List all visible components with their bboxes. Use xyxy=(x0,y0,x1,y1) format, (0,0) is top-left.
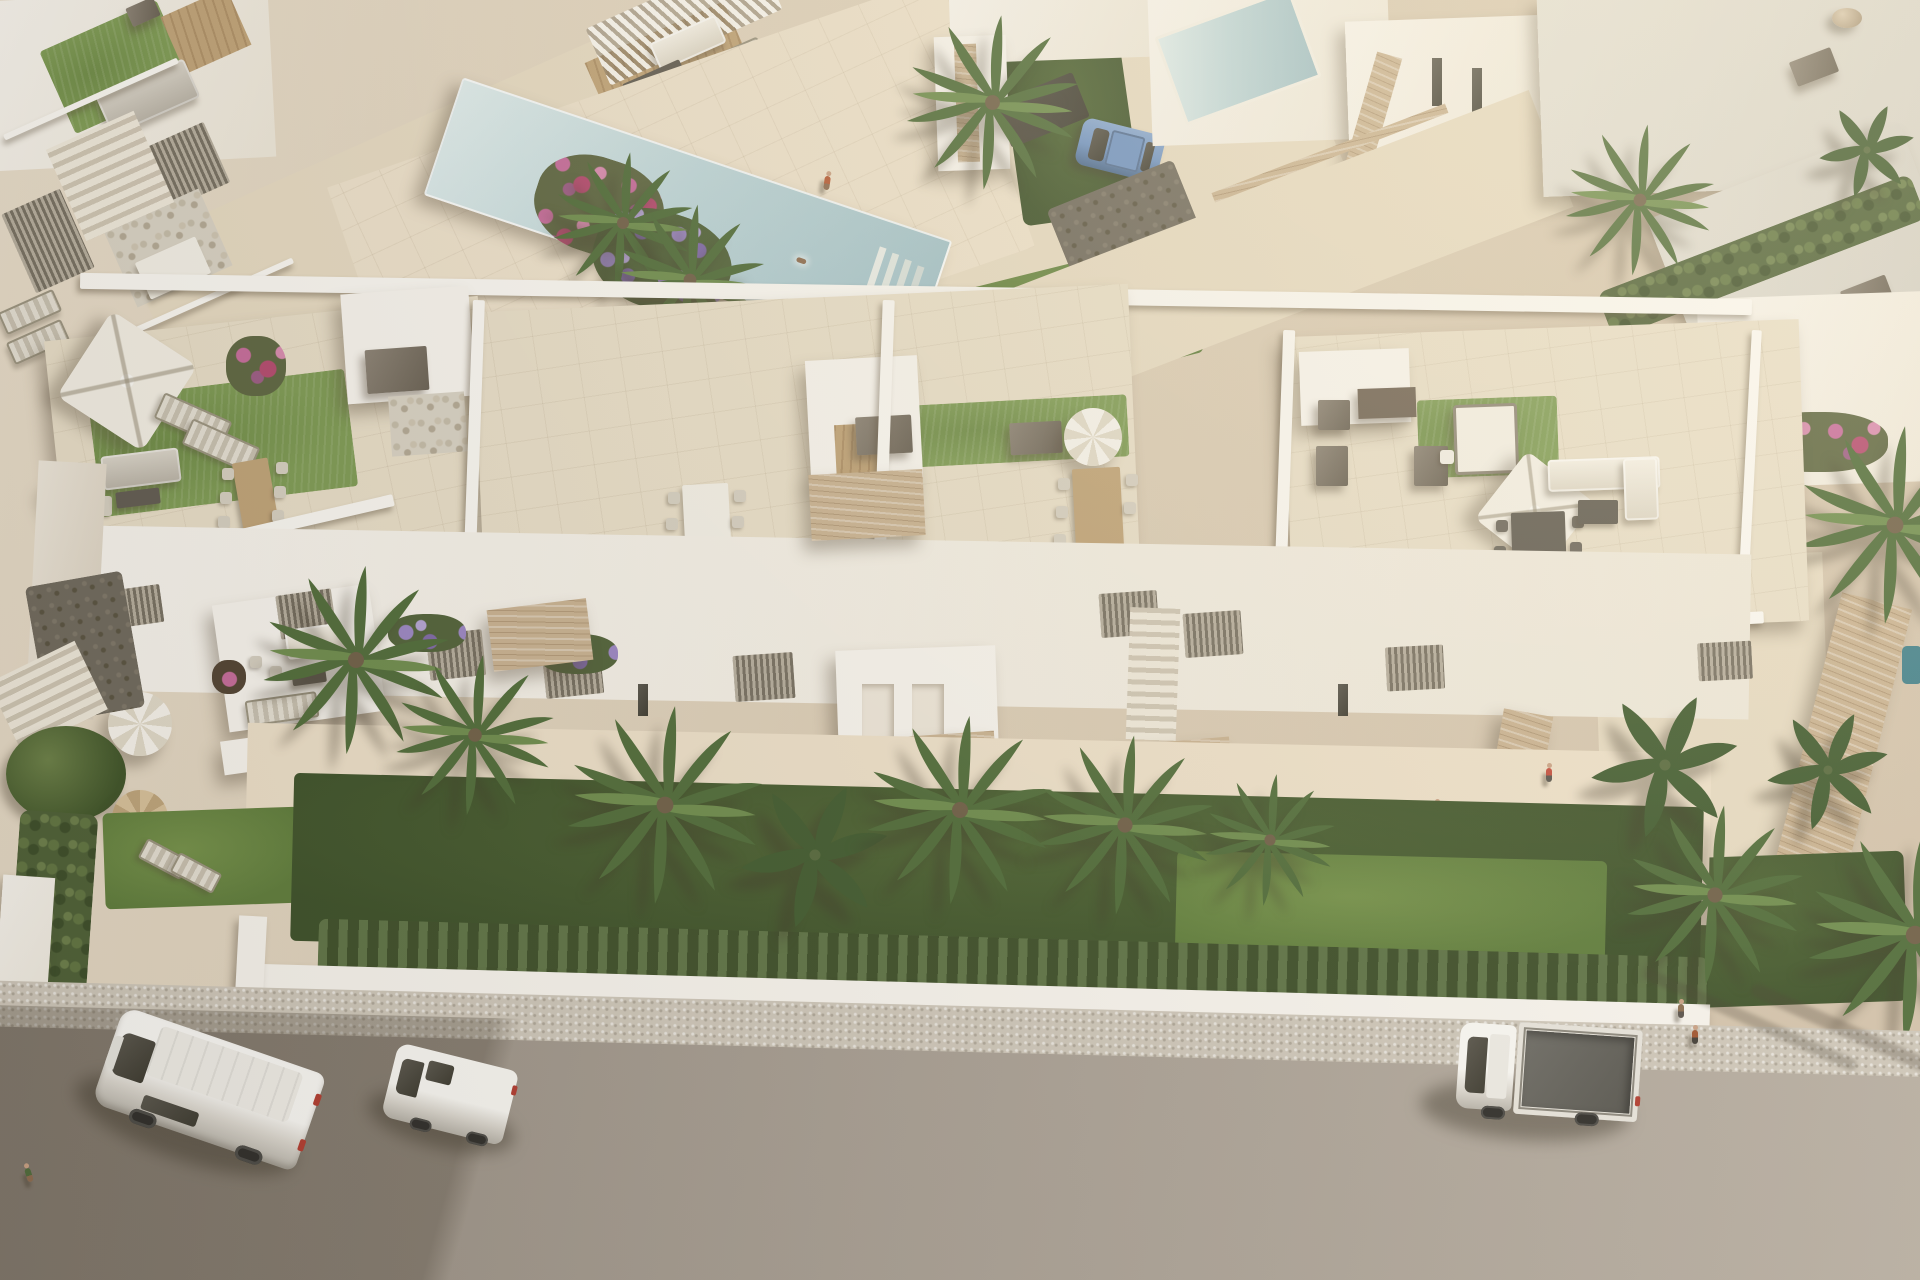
roof-storage-box xyxy=(1009,421,1063,456)
roof-corner-sofa xyxy=(1623,457,1659,520)
chair xyxy=(1124,502,1136,514)
louver-door xyxy=(1697,641,1753,682)
pebble-patch xyxy=(388,391,468,456)
teal-car-glimpse xyxy=(1902,646,1920,684)
chair xyxy=(734,490,746,502)
chair xyxy=(222,468,234,480)
palm-tree-icon xyxy=(1560,120,1720,280)
window-slit xyxy=(1338,684,1348,716)
chair xyxy=(218,516,230,528)
chair xyxy=(220,492,232,504)
stone-canopy xyxy=(808,469,925,541)
white-flatbed-truck xyxy=(1455,1018,1643,1124)
pedestrian xyxy=(1678,1004,1684,1018)
chair xyxy=(732,516,744,528)
palm-tree-icon xyxy=(1200,770,1340,910)
palm-tree-icon xyxy=(1620,800,1810,990)
chair xyxy=(668,492,680,504)
front-garden-lawn xyxy=(102,807,301,910)
aerial-render-scene xyxy=(0,0,1920,1280)
side-stool xyxy=(1440,450,1454,464)
swimmer xyxy=(796,257,807,265)
roof-daybed xyxy=(1453,403,1519,475)
chair xyxy=(1058,478,1070,490)
palm-tree-icon xyxy=(1030,730,1220,920)
person xyxy=(1546,768,1552,782)
rooftop-parasol xyxy=(1064,408,1122,466)
flowering-tree-planter xyxy=(226,336,286,396)
louver-door xyxy=(1385,645,1445,692)
chair xyxy=(1496,520,1508,532)
banana-plant-icon xyxy=(1812,95,1920,205)
roof-storage-box xyxy=(1316,446,1348,486)
louver-pergola xyxy=(1183,610,1244,658)
palm-tree-icon xyxy=(900,10,1085,195)
roof-dining-table xyxy=(1072,467,1124,551)
window-slit xyxy=(1432,58,1442,106)
shrub xyxy=(6,726,126,822)
interior-stairs xyxy=(1126,607,1181,741)
roof-storage-box xyxy=(1357,387,1416,419)
chair xyxy=(274,486,286,498)
chair xyxy=(1126,474,1138,486)
roof-storage-box xyxy=(1318,400,1350,430)
louver-door xyxy=(732,652,795,702)
pedestrian xyxy=(1692,1030,1698,1044)
coffee-table xyxy=(1578,500,1618,524)
red-plant xyxy=(212,660,246,694)
chair xyxy=(666,518,678,530)
boulder xyxy=(1832,8,1862,28)
chair xyxy=(1056,506,1068,518)
chair xyxy=(276,462,288,474)
palm-tree-icon xyxy=(1790,420,1920,630)
palm-tree-icon xyxy=(390,650,560,820)
roof-storage-box xyxy=(365,346,430,394)
